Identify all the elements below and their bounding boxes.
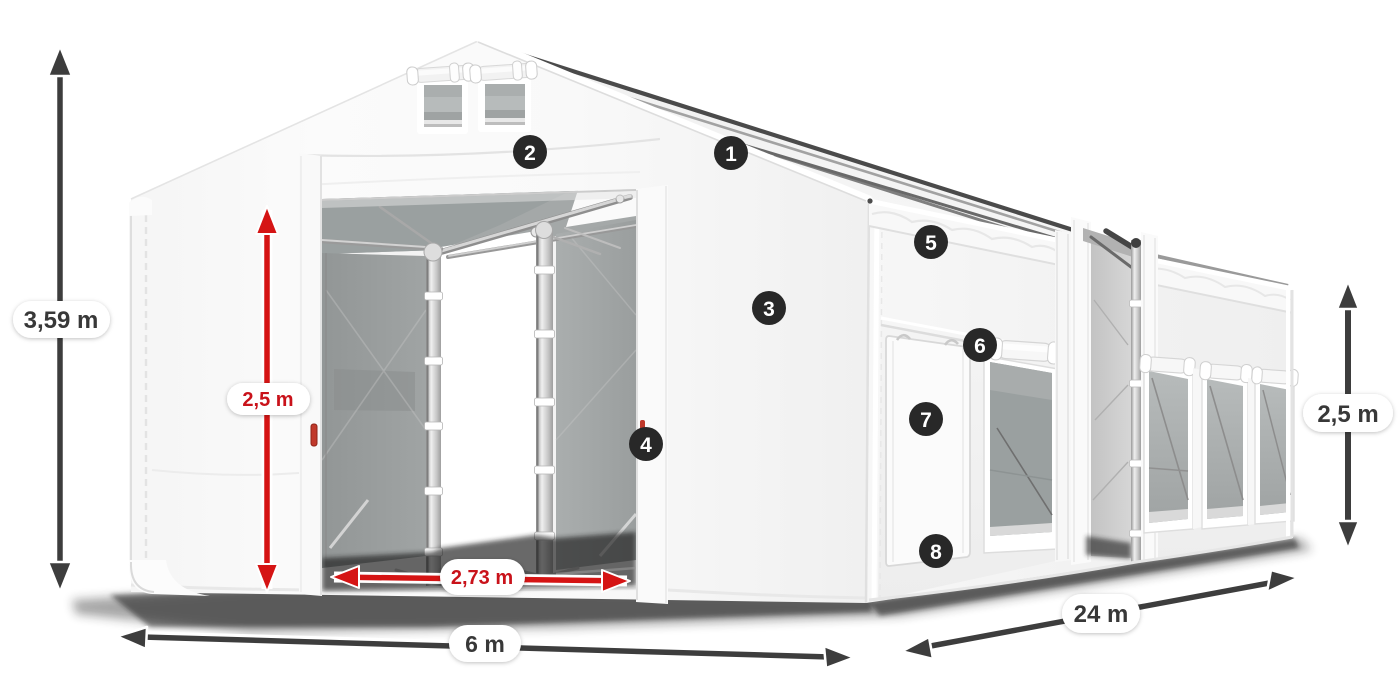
svg-text:8: 8 bbox=[930, 541, 942, 564]
svg-text:1: 1 bbox=[725, 143, 737, 166]
svg-text:2: 2 bbox=[524, 142, 536, 165]
svg-text:7: 7 bbox=[920, 409, 932, 432]
svg-text:24 m: 24 m bbox=[1074, 601, 1129, 628]
svg-text:6 m: 6 m bbox=[465, 631, 505, 657]
svg-text:2,5 m: 2,5 m bbox=[1317, 401, 1378, 428]
svg-text:5: 5 bbox=[925, 232, 937, 255]
svg-text:3: 3 bbox=[763, 298, 775, 321]
svg-text:3,59 m: 3,59 m bbox=[24, 307, 99, 334]
svg-text:2,5 m: 2,5 m bbox=[242, 389, 293, 411]
svg-text:2,73 m: 2,73 m bbox=[451, 567, 513, 589]
svg-text:6: 6 bbox=[974, 335, 986, 358]
svg-text:4: 4 bbox=[640, 434, 652, 457]
